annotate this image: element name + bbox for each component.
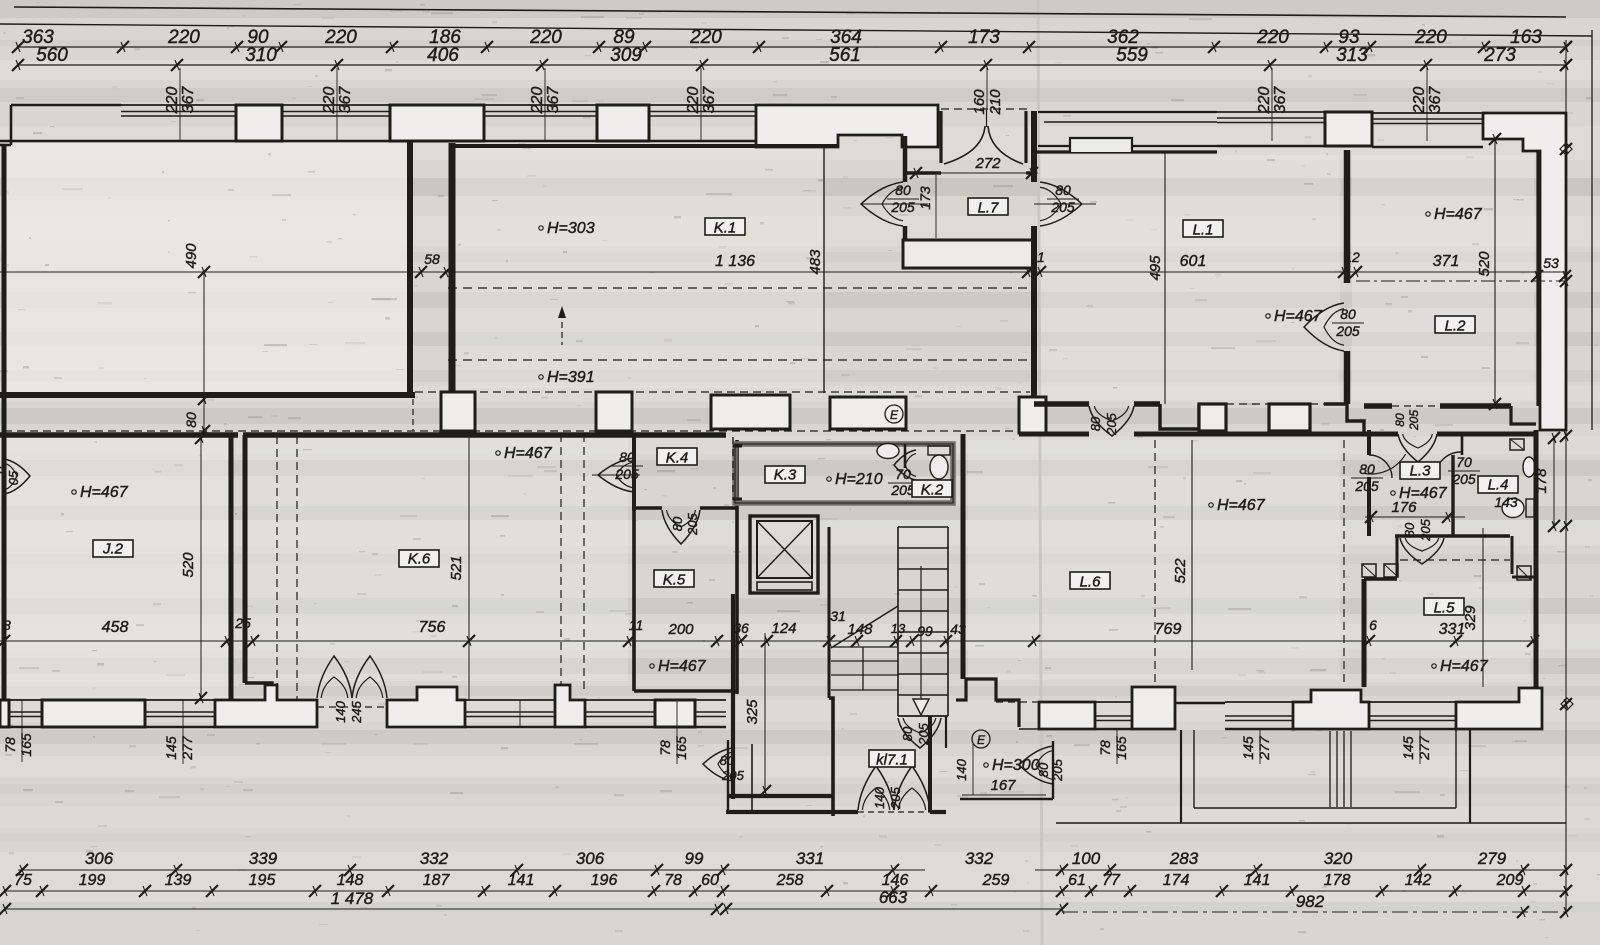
svg-text:60: 60 <box>701 872 719 889</box>
svg-text:58: 58 <box>424 251 440 267</box>
svg-text:E: E <box>977 733 986 747</box>
svg-text:165: 165 <box>18 733 34 757</box>
svg-text:205: 205 <box>1451 471 1476 487</box>
svg-text:756: 756 <box>419 619 446 636</box>
svg-text:78: 78 <box>657 740 673 756</box>
svg-text:195: 195 <box>249 872 276 889</box>
svg-text:309: 309 <box>610 45 642 66</box>
svg-text:78: 78 <box>2 737 18 753</box>
svg-text:100: 100 <box>1072 849 1101 868</box>
svg-text:331: 331 <box>796 849 824 868</box>
svg-text:H=210: H=210 <box>835 471 883 488</box>
svg-text:205: 205 <box>721 768 744 783</box>
svg-text:145: 145 <box>1400 736 1416 760</box>
svg-text:70: 70 <box>1456 454 1472 470</box>
svg-text:78: 78 <box>664 872 682 889</box>
svg-text:367: 367 <box>1272 86 1289 114</box>
svg-text:11: 11 <box>629 617 644 633</box>
svg-text:80: 80 <box>1402 522 1417 537</box>
svg-text:210: 210 <box>987 89 1004 116</box>
svg-text:H=467: H=467 <box>504 445 553 462</box>
svg-text:406: 406 <box>427 45 459 66</box>
svg-text:80: 80 <box>670 516 685 531</box>
svg-text:367: 367 <box>1427 86 1444 114</box>
svg-text:220: 220 <box>324 27 357 48</box>
svg-text:277: 277 <box>1256 735 1272 761</box>
svg-text:99: 99 <box>685 849 704 868</box>
svg-text:K.2: K.2 <box>921 482 944 499</box>
svg-text:220: 220 <box>1256 27 1289 48</box>
svg-text:1 478: 1 478 <box>331 889 374 908</box>
svg-text:99: 99 <box>917 623 933 639</box>
svg-text:332: 332 <box>420 849 449 868</box>
svg-text:277: 277 <box>1416 735 1432 761</box>
svg-text:53: 53 <box>1543 255 1559 271</box>
svg-text:259: 259 <box>982 872 1010 889</box>
svg-text:220: 220 <box>164 87 181 115</box>
svg-text:145: 145 <box>163 736 179 760</box>
svg-text:H=391: H=391 <box>547 369 595 386</box>
svg-text:561: 561 <box>829 45 861 66</box>
svg-text:522: 522 <box>1172 558 1189 584</box>
svg-text:205: 205 <box>1335 323 1360 339</box>
svg-text:143: 143 <box>1494 494 1518 510</box>
svg-text:220: 220 <box>1411 87 1428 115</box>
svg-text:80: 80 <box>1393 413 1407 427</box>
svg-text:H=467: H=467 <box>1434 206 1483 223</box>
svg-text:559: 559 <box>1116 45 1148 66</box>
svg-text:H=467: H=467 <box>658 658 707 675</box>
svg-text:490: 490 <box>183 243 200 269</box>
svg-text:L.5: L.5 <box>1434 600 1456 617</box>
svg-text:205: 205 <box>1418 518 1433 541</box>
svg-text:982: 982 <box>1296 892 1325 911</box>
svg-text:05: 05 <box>6 470 21 485</box>
svg-text:199: 199 <box>79 872 106 889</box>
svg-text:31: 31 <box>830 608 846 624</box>
svg-text:273: 273 <box>1483 45 1516 66</box>
svg-text:205: 205 <box>1104 412 1119 435</box>
svg-text:1 136: 1 136 <box>715 253 755 270</box>
svg-text:272: 272 <box>974 155 1001 172</box>
svg-text:K.1: K.1 <box>714 220 737 237</box>
svg-text:205: 205 <box>1407 410 1421 431</box>
svg-text:520: 520 <box>1476 251 1493 277</box>
svg-text:61: 61 <box>1068 872 1086 889</box>
svg-text:141: 141 <box>508 872 535 889</box>
svg-text:205: 205 <box>890 199 915 215</box>
svg-text:325: 325 <box>744 699 761 725</box>
svg-text:K.3: K.3 <box>774 467 797 484</box>
svg-text:306: 306 <box>85 849 114 868</box>
svg-text:80: 80 <box>1036 762 1051 777</box>
svg-text:176: 176 <box>1391 499 1417 516</box>
svg-text:313: 313 <box>1336 45 1368 66</box>
svg-text:209: 209 <box>1496 872 1524 889</box>
svg-text:220: 220 <box>685 87 702 115</box>
svg-text:220: 220 <box>689 27 722 48</box>
svg-text:205: 205 <box>888 786 903 809</box>
svg-text:320: 320 <box>1324 849 1353 868</box>
svg-text:140: 140 <box>872 786 887 808</box>
svg-text:E: E <box>890 408 899 422</box>
svg-text:H=303: H=303 <box>547 220 595 237</box>
svg-text:L.4: L.4 <box>1488 477 1509 494</box>
svg-text:220: 220 <box>1414 27 1447 48</box>
svg-text:140: 140 <box>333 700 348 722</box>
svg-text:L.7: L.7 <box>978 200 1000 217</box>
svg-text:205: 205 <box>614 466 639 482</box>
svg-text:205: 205 <box>685 512 700 535</box>
svg-text:220: 220 <box>321 87 338 115</box>
svg-text:J.2: J.2 <box>102 541 124 558</box>
svg-text:560: 560 <box>36 45 68 66</box>
svg-text:H=467: H=467 <box>80 484 129 501</box>
svg-text:145: 145 <box>1240 736 1256 760</box>
svg-text:339: 339 <box>249 849 278 868</box>
svg-text:329: 329 <box>1462 605 1479 631</box>
svg-text:205: 205 <box>1354 478 1379 494</box>
svg-text:165: 165 <box>1113 736 1129 760</box>
svg-text:139: 139 <box>165 872 192 889</box>
svg-text:K.5: K.5 <box>663 572 686 589</box>
svg-text:78: 78 <box>1097 740 1113 756</box>
svg-text:kl7.1: kl7.1 <box>876 752 908 769</box>
svg-text:458: 458 <box>102 619 129 636</box>
svg-text:220: 220 <box>529 87 546 115</box>
svg-text:H=300: H=300 <box>992 757 1040 774</box>
svg-text:75: 75 <box>14 872 32 889</box>
svg-text:H=467: H=467 <box>1217 497 1266 514</box>
svg-text:80: 80 <box>619 449 635 465</box>
svg-text:196: 196 <box>591 872 618 889</box>
svg-text:146: 146 <box>882 872 909 889</box>
svg-text:277: 277 <box>179 735 195 761</box>
svg-text:160: 160 <box>971 89 988 115</box>
svg-text:80: 80 <box>1359 461 1375 477</box>
svg-text:L.3: L.3 <box>1410 463 1432 480</box>
svg-text:173: 173 <box>968 27 1000 48</box>
svg-text:220: 220 <box>1256 87 1273 115</box>
svg-text:174: 174 <box>1163 872 1190 889</box>
svg-text:220: 220 <box>529 27 562 48</box>
svg-text:769: 769 <box>1155 621 1182 638</box>
svg-text:367: 367 <box>545 86 562 114</box>
svg-text:200: 200 <box>667 621 694 638</box>
svg-text:L.2: L.2 <box>1445 318 1467 335</box>
svg-text:306: 306 <box>576 849 605 868</box>
svg-text:80: 80 <box>895 182 911 198</box>
svg-text:K.6: K.6 <box>408 551 431 568</box>
svg-text:187: 187 <box>423 872 451 889</box>
svg-text:6: 6 <box>1369 617 1377 633</box>
svg-text:220: 220 <box>167 27 200 48</box>
svg-text:142: 142 <box>1405 872 1432 889</box>
svg-text:521: 521 <box>448 555 465 580</box>
svg-text:80: 80 <box>1340 306 1356 322</box>
svg-text:L.1: L.1 <box>1193 222 1214 239</box>
svg-text:245: 245 <box>349 700 364 723</box>
svg-text:148: 148 <box>337 872 364 889</box>
svg-text:77: 77 <box>1102 872 1121 889</box>
svg-text:L.6: L.6 <box>1080 574 1102 591</box>
svg-text:205: 205 <box>1050 758 1065 781</box>
svg-text:H=467: H=467 <box>1440 658 1489 675</box>
svg-text:663: 663 <box>879 888 908 907</box>
svg-text:283: 283 <box>1169 849 1199 868</box>
svg-text:70: 70 <box>895 466 911 482</box>
svg-text:332: 332 <box>965 849 994 868</box>
svg-text:601: 601 <box>1180 253 1207 270</box>
svg-text:371: 371 <box>1433 253 1460 270</box>
svg-text:483: 483 <box>807 249 824 275</box>
svg-text:495: 495 <box>1147 255 1164 281</box>
svg-text:165: 165 <box>673 736 689 760</box>
svg-text:124: 124 <box>771 620 796 637</box>
svg-text:8: 8 <box>3 617 11 633</box>
svg-text:173: 173 <box>917 186 933 210</box>
svg-text:520: 520 <box>180 552 197 578</box>
svg-text:80: 80 <box>1088 416 1103 431</box>
svg-text:367: 367 <box>337 86 354 114</box>
svg-text:140: 140 <box>954 758 969 780</box>
svg-text:80: 80 <box>900 726 915 741</box>
svg-text:141: 141 <box>1244 872 1271 889</box>
svg-text:80: 80 <box>1055 182 1071 198</box>
svg-text:K.4: K.4 <box>666 450 689 467</box>
svg-text:310: 310 <box>245 45 277 66</box>
svg-text:205: 205 <box>1050 199 1075 215</box>
svg-text:258: 258 <box>776 872 804 889</box>
svg-text:279: 279 <box>1477 849 1507 868</box>
svg-text:167: 167 <box>990 777 1016 794</box>
svg-text:178: 178 <box>1324 872 1351 889</box>
svg-text:367: 367 <box>701 86 718 114</box>
svg-text:367: 367 <box>180 86 197 114</box>
svg-text:80: 80 <box>183 412 199 428</box>
